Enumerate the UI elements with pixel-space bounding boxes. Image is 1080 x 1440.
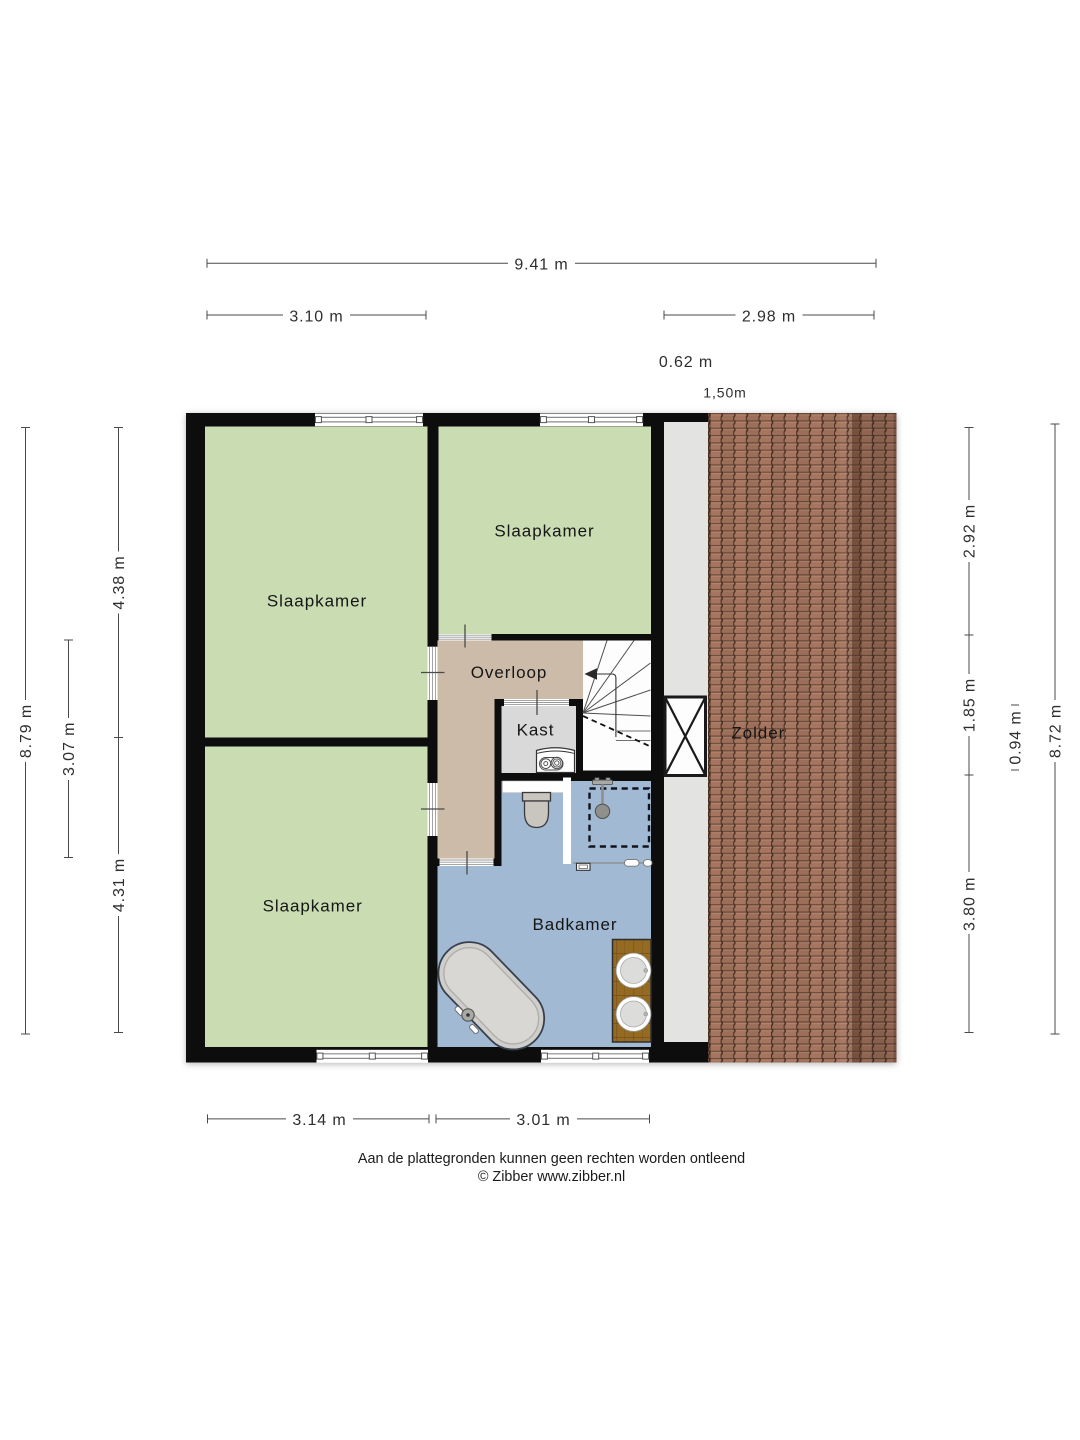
svg-text:4.38 m: 4.38 m <box>111 555 128 609</box>
svg-text:3.80 m: 3.80 m <box>962 877 979 931</box>
svg-text:2.98 m: 2.98 m <box>742 308 796 325</box>
svg-text:3.10 m: 3.10 m <box>289 308 343 325</box>
svg-text:8.79 m: 8.79 m <box>18 704 35 758</box>
svg-text:0.62 m: 0.62 m <box>659 354 713 371</box>
svg-text:Badkamer: Badkamer <box>532 915 617 934</box>
svg-text:2.92 m: 2.92 m <box>962 504 979 558</box>
svg-text:Kast: Kast <box>517 720 555 739</box>
svg-text:Overloop: Overloop <box>471 663 548 682</box>
svg-text:0.94 m: 0.94 m <box>1008 710 1025 764</box>
svg-text:4.31 m: 4.31 m <box>111 858 128 912</box>
svg-text:3.01 m: 3.01 m <box>516 1112 570 1129</box>
svg-text:9.41 m: 9.41 m <box>514 257 568 274</box>
svg-text:8.72 m: 8.72 m <box>1048 704 1065 758</box>
svg-text:Slaapkamer: Slaapkamer <box>263 897 363 916</box>
svg-text:1.85 m: 1.85 m <box>962 678 979 732</box>
svg-text:Aan de plattegronden kunnen ge: Aan de plattegronden kunnen geen rechten… <box>358 1151 745 1167</box>
svg-text:Slaapkamer: Slaapkamer <box>494 522 594 541</box>
svg-text:1,50m: 1,50m <box>703 385 746 401</box>
svg-text:3.14 m: 3.14 m <box>292 1112 346 1129</box>
svg-text:Zolder: Zolder <box>731 724 785 743</box>
svg-text:© Zibber www.zibber.nl: © Zibber www.zibber.nl <box>478 1169 625 1185</box>
svg-text:3.07 m: 3.07 m <box>61 722 78 776</box>
svg-text:Slaapkamer: Slaapkamer <box>267 592 367 611</box>
